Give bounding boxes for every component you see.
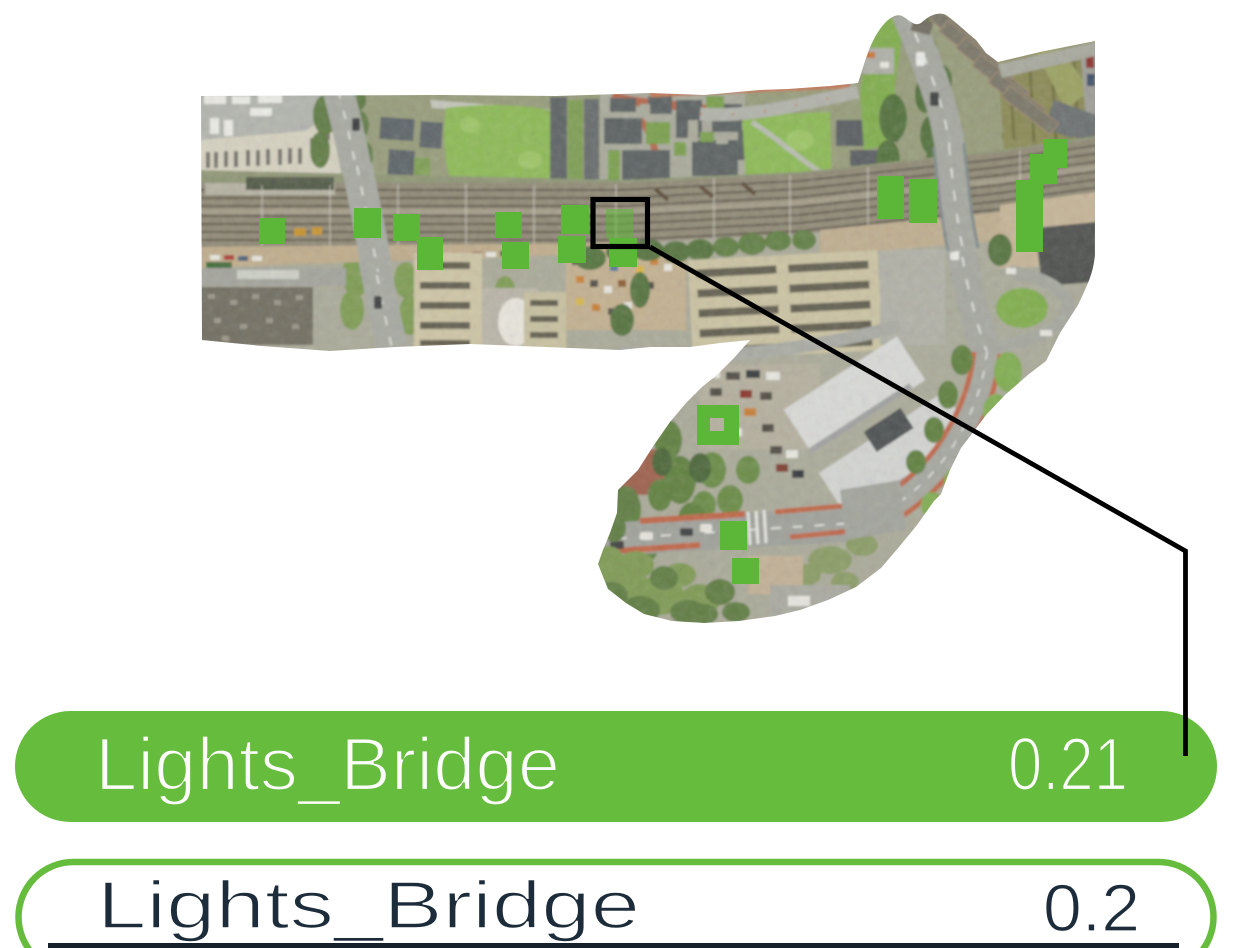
svg-text:0.21: 0.21 — [1008, 722, 1128, 806]
svg-text:0.2: 0.2 — [1043, 871, 1140, 946]
svg-text:Lights_Bridge: Lights_Bridge — [95, 722, 560, 806]
svg-text:Lights_Bridge: Lights_Bridge — [97, 869, 640, 943]
